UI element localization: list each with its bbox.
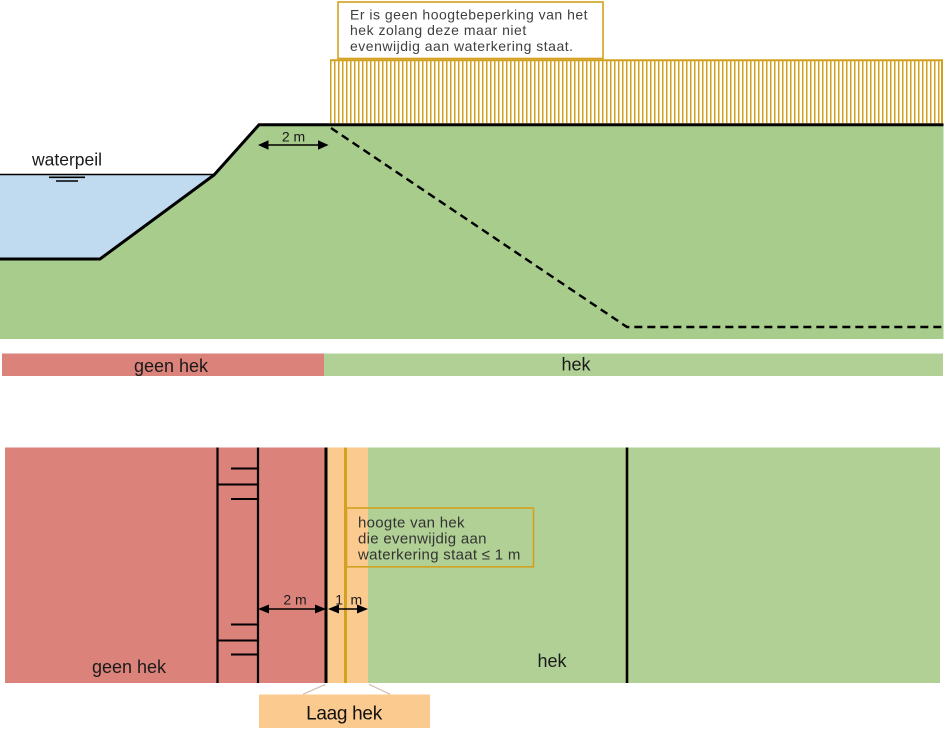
- svg-text:hek: hek: [537, 651, 567, 671]
- svg-text:m: m: [351, 592, 363, 608]
- svg-text:1: 1: [335, 592, 343, 608]
- svg-text:hek: hek: [561, 355, 591, 375]
- svg-text:2 m: 2 m: [283, 592, 306, 608]
- svg-text:Laag hek: Laag hek: [306, 703, 383, 724]
- svg-text:hek zolang deze maar niet: hek zolang deze maar niet: [350, 22, 527, 38]
- svg-text:Er is geen hoogtebeperking van: Er is geen hoogtebeperking van het: [350, 6, 588, 22]
- svg-text:geen hek: geen hek: [134, 356, 209, 376]
- svg-text:geen hek: geen hek: [92, 657, 167, 677]
- svg-text:die evenwijdig aan: die evenwijdig aan: [358, 531, 487, 548]
- svg-text:evenwijdig aan waterkering sta: evenwijdig aan waterkering staat.: [350, 38, 574, 54]
- svg-text:waterkering staat ≤ 1 m: waterkering staat ≤ 1 m: [357, 547, 521, 564]
- svg-text:waterpeil: waterpeil: [31, 150, 102, 170]
- svg-text:2 m: 2 m: [282, 129, 305, 145]
- svg-text:hoogte van hek: hoogte van hek: [358, 515, 465, 532]
